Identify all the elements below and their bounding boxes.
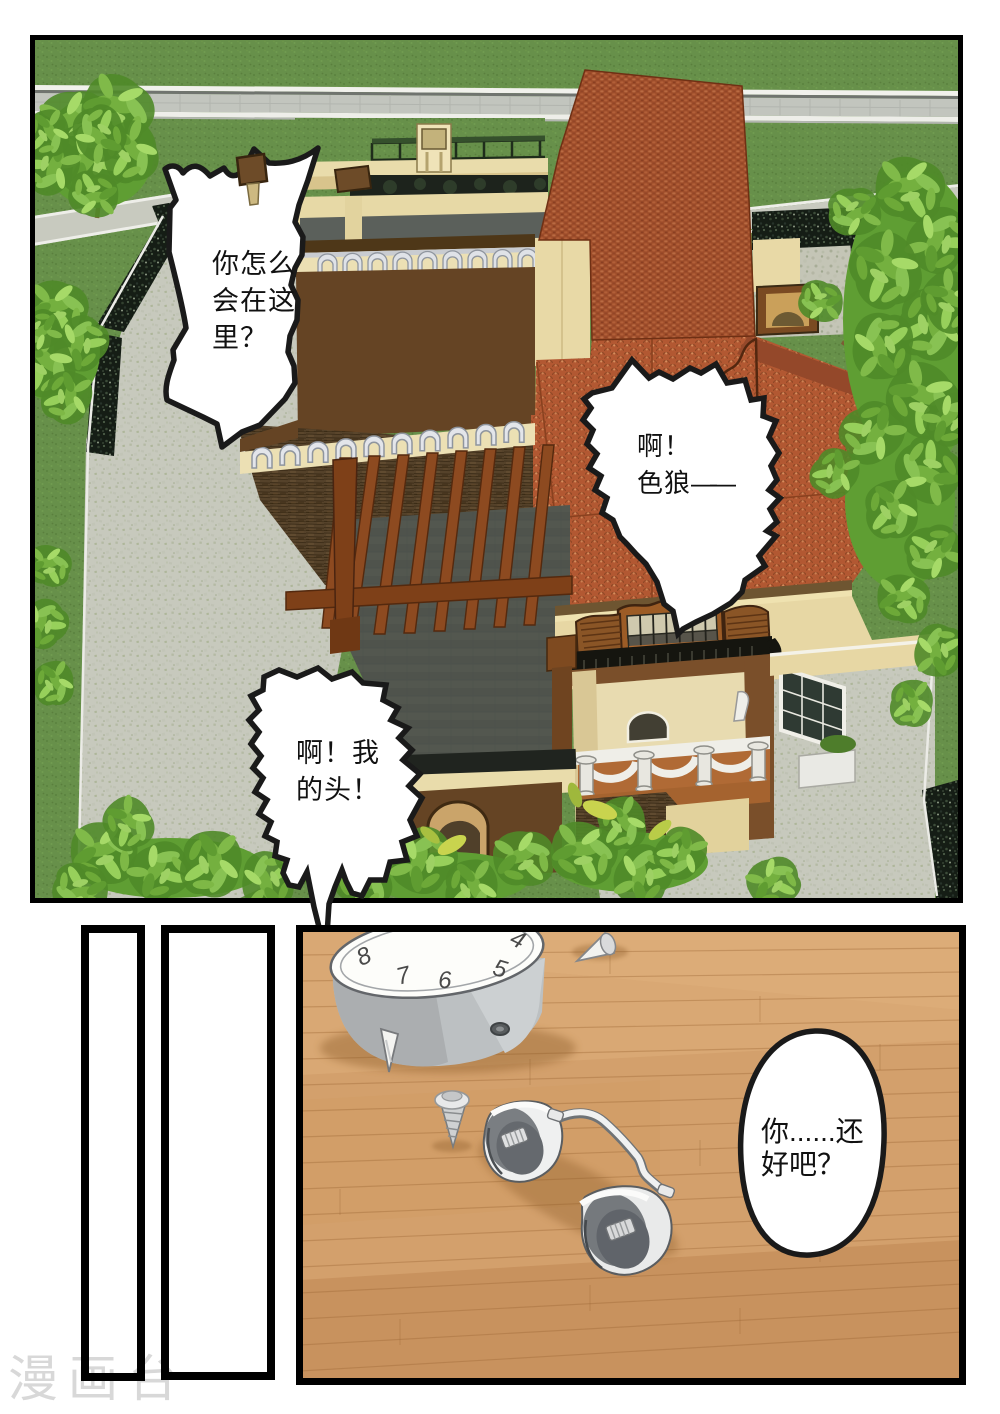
svg-text:6: 6 <box>438 967 453 994</box>
